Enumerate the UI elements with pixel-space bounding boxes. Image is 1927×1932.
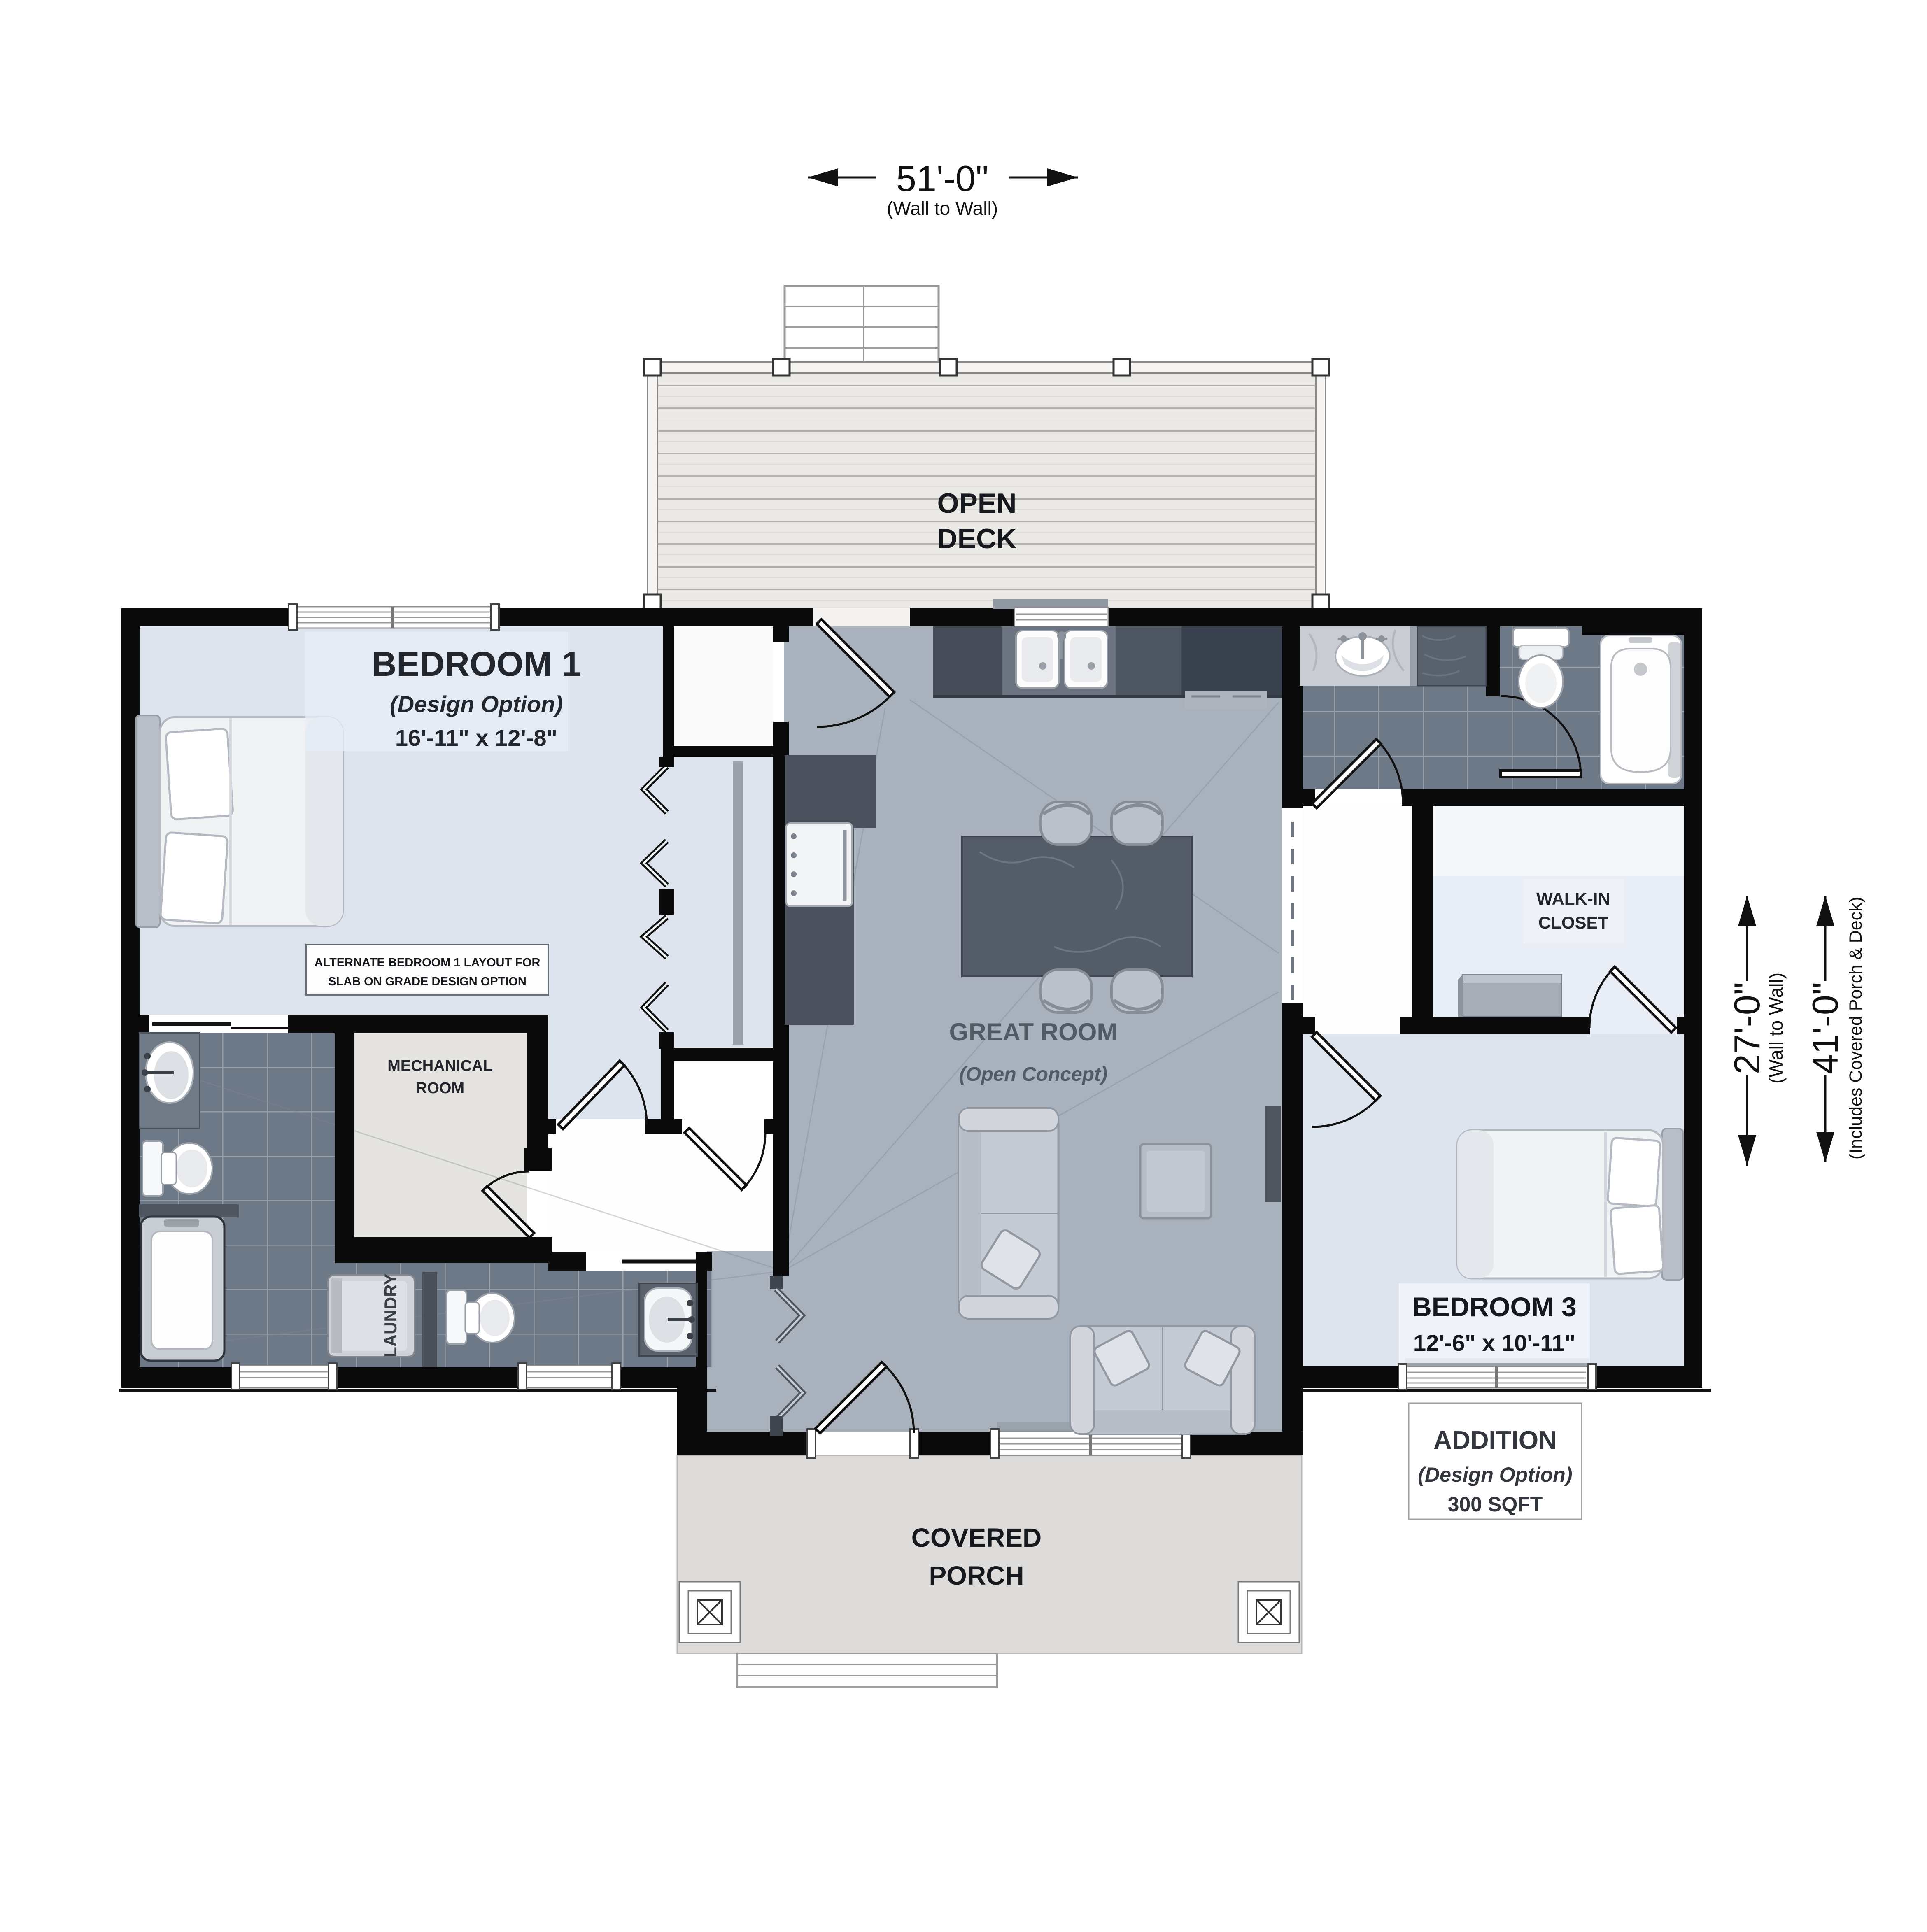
svg-text:ADDITION: ADDITION — [1433, 1426, 1557, 1455]
svg-text:51'-0": 51'-0" — [896, 158, 988, 199]
svg-text:SLAB ON GRADE DESIGN OPTION: SLAB ON GRADE DESIGN OPTION — [328, 975, 527, 988]
svg-text:(Open Concept): (Open Concept) — [959, 1064, 1107, 1085]
svg-text:BEDROOM 1: BEDROOM 1 — [372, 645, 581, 683]
svg-text:16'-11" x 12'-8": 16'-11" x 12'-8" — [395, 725, 557, 751]
svg-text:(Design Option): (Design Option) — [390, 691, 563, 717]
svg-text:PORCH: PORCH — [929, 1561, 1024, 1590]
svg-text:CLOSET: CLOSET — [1538, 913, 1609, 932]
svg-text:WALK-IN: WALK-IN — [1536, 889, 1610, 908]
svg-text:(Design Option): (Design Option) — [1418, 1463, 1573, 1486]
svg-text:ALTERNATE BEDROOM 1 LAYOUT FOR: ALTERNATE BEDROOM 1 LAYOUT FOR — [315, 956, 541, 969]
svg-text:27'-0": 27'-0" — [1727, 982, 1767, 1074]
svg-text:41'-0": 41'-0" — [1805, 982, 1845, 1074]
svg-text:DECK: DECK — [937, 523, 1017, 554]
svg-text:LAUNDRY: LAUNDRY — [381, 1273, 400, 1357]
svg-text:(Wall to Wall): (Wall to Wall) — [1765, 973, 1787, 1084]
svg-text:BEDROOM 3: BEDROOM 3 — [1412, 1292, 1577, 1322]
svg-text:ROOM: ROOM — [416, 1080, 464, 1097]
svg-text:COVERED: COVERED — [911, 1523, 1042, 1553]
svg-text:12'-6" x 10'-11": 12'-6" x 10'-11" — [1413, 1330, 1575, 1356]
svg-text:(Includes Covered Porch & Deck: (Includes Covered Porch & Deck) — [1846, 897, 1866, 1159]
svg-text:300 SQFT: 300 SQFT — [1448, 1493, 1543, 1516]
svg-text:GREAT ROOM: GREAT ROOM — [949, 1018, 1118, 1046]
svg-text:MECHANICAL: MECHANICAL — [387, 1057, 492, 1075]
svg-text:OPEN: OPEN — [937, 488, 1017, 519]
svg-text:(Wall to Wall): (Wall to Wall) — [887, 198, 998, 219]
